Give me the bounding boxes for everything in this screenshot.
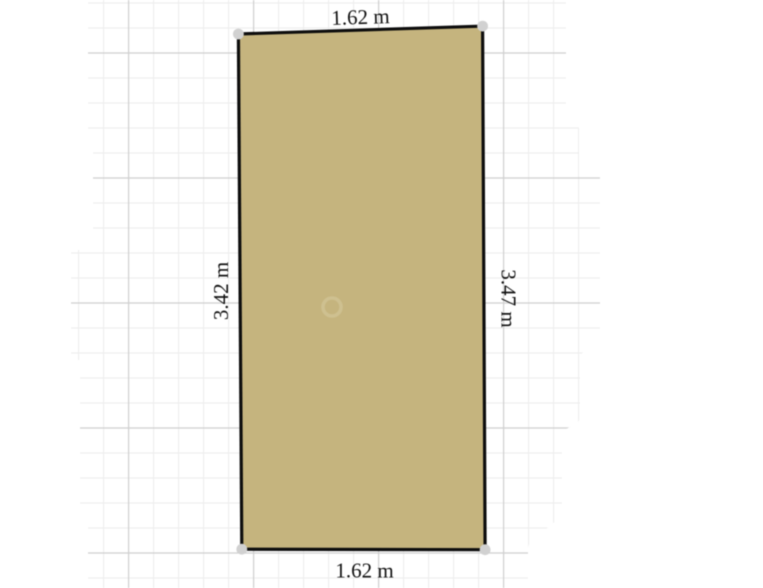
svg-text:3.47 m: 3.47 m xyxy=(497,269,521,327)
svg-text:1.62 m: 1.62 m xyxy=(331,4,390,30)
svg-text:3.42 m: 3.42 m xyxy=(209,262,233,320)
svg-text:1.62 m: 1.62 m xyxy=(335,559,393,583)
